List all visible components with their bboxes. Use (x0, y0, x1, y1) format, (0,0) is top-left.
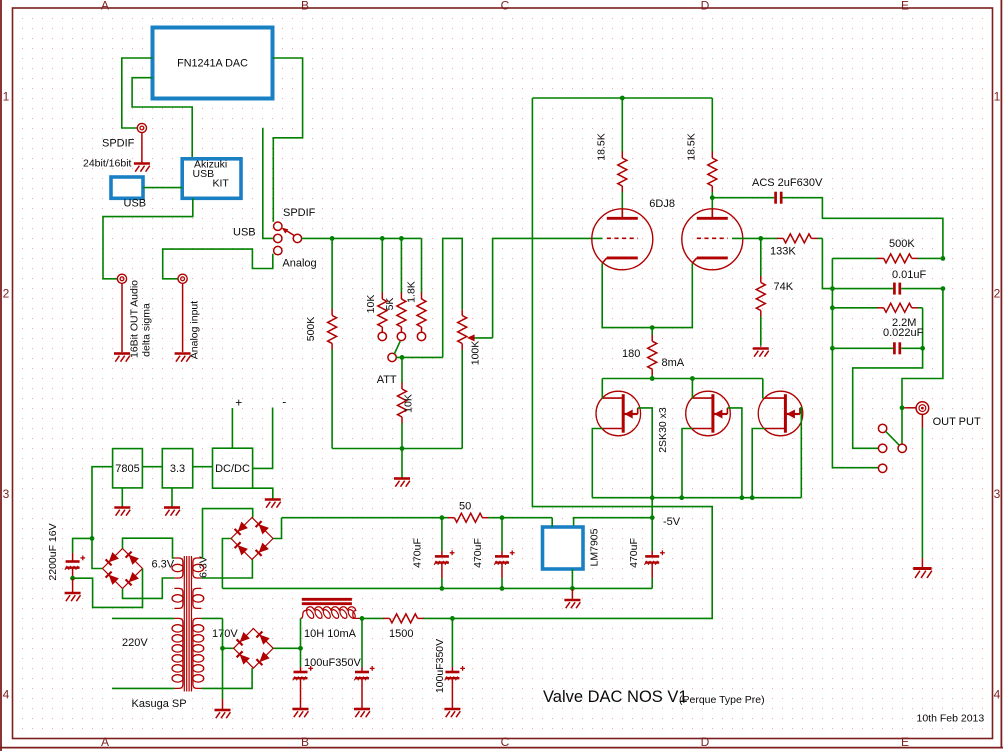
svg-text:4: 4 (3, 688, 10, 702)
svg-text:2SK30 x3: 2SK30 x3 (657, 407, 669, 453)
svg-text:(Perque Type Pre): (Perque Type Pre) (679, 694, 765, 706)
svg-text:E: E (901, 0, 909, 13)
svg-text:5K: 5K (384, 298, 396, 311)
svg-text:1: 1 (994, 90, 1001, 104)
svg-text:3.3: 3.3 (170, 463, 185, 475)
svg-text:C: C (501, 735, 510, 749)
svg-text:USB: USB (124, 198, 147, 210)
svg-text:Analog input: Analog input (188, 301, 200, 359)
svg-text:500K: 500K (305, 317, 317, 342)
svg-text:18.5K: 18.5K (686, 133, 698, 160)
svg-text:100uF350V: 100uF350V (434, 639, 446, 693)
svg-text:0.01uF: 0.01uF (892, 269, 927, 281)
svg-text:E: E (901, 735, 909, 749)
svg-text:100K: 100K (470, 341, 482, 366)
svg-text:470uF: 470uF (412, 538, 424, 568)
svg-text:220V: 220V (122, 637, 148, 649)
svg-text:100uF350V: 100uF350V (304, 657, 362, 669)
svg-text:SPDIF: SPDIF (102, 138, 135, 150)
svg-text:6.3V: 6.3V (152, 559, 175, 571)
svg-text:DC/DC: DC/DC (215, 463, 250, 475)
svg-text:3: 3 (994, 487, 1001, 501)
svg-text:500K: 500K (889, 238, 915, 250)
svg-text:+: + (235, 396, 242, 410)
svg-text:470uF: 470uF (628, 538, 640, 568)
svg-text:B: B (301, 735, 309, 749)
svg-text:1500: 1500 (389, 628, 413, 640)
svg-text:2200uF 16V: 2200uF 16V (47, 523, 59, 580)
svg-text:A: A (101, 735, 109, 749)
svg-text:USB: USB (193, 168, 215, 180)
svg-text:10H 10mA: 10H 10mA (304, 628, 357, 640)
svg-text:-5V: -5V (663, 516, 681, 528)
svg-text:7805: 7805 (115, 463, 139, 475)
svg-text:0.022uF: 0.022uF (883, 327, 924, 339)
svg-text:Analog: Analog (282, 258, 316, 270)
svg-text:10th Feb 2013: 10th Feb 2013 (917, 713, 985, 725)
svg-text:LM7905: LM7905 (589, 528, 601, 566)
svg-text:B: B (301, 0, 309, 13)
svg-text:D: D (701, 735, 710, 749)
svg-text:OUT PUT: OUT PUT (933, 416, 981, 428)
svg-text:KIT: KIT (213, 178, 230, 190)
svg-text:24bit/16bit: 24bit/16bit (83, 158, 132, 170)
svg-text:133K: 133K (770, 246, 796, 258)
svg-text:ACS 2uF630V: ACS 2uF630V (752, 177, 823, 189)
svg-text:1.8K: 1.8K (406, 281, 418, 303)
svg-text:2: 2 (3, 287, 10, 301)
svg-text:18.5K: 18.5K (596, 133, 608, 160)
svg-text:10K: 10K (365, 295, 377, 314)
svg-text:D: D (701, 0, 710, 13)
svg-text:50: 50 (459, 501, 471, 513)
svg-text:-: - (282, 395, 286, 409)
svg-text:4: 4 (994, 688, 1001, 702)
svg-text:3: 3 (3, 487, 10, 501)
svg-text:Valve DAC NOS V1: Valve DAC NOS V1 (543, 688, 688, 706)
svg-text:470uF: 470uF (472, 538, 484, 568)
svg-text:FN1241A DAC: FN1241A DAC (177, 58, 248, 70)
svg-text:2: 2 (994, 287, 1001, 301)
svg-text:170V: 170V (212, 628, 238, 640)
svg-text:8mA: 8mA (662, 357, 685, 369)
svg-text:Kasuga SP: Kasuga SP (132, 698, 187, 710)
svg-text:A: A (101, 0, 109, 13)
svg-text:6DJ8: 6DJ8 (649, 198, 675, 210)
svg-text:SPDIF: SPDIF (283, 207, 316, 219)
svg-text:delta sigma: delta sigma (141, 303, 153, 357)
svg-text:10K: 10K (403, 394, 415, 413)
svg-text:6.3V: 6.3V (198, 556, 210, 578)
svg-text:C: C (501, 0, 510, 13)
svg-text:16Bit OUT Audio: 16Bit OUT Audio (129, 280, 141, 358)
svg-text:74K: 74K (774, 281, 794, 293)
svg-text:USB: USB (233, 227, 256, 239)
svg-text:180: 180 (622, 348, 640, 360)
svg-text:ATT: ATT (377, 374, 397, 386)
svg-text:1: 1 (3, 90, 10, 104)
